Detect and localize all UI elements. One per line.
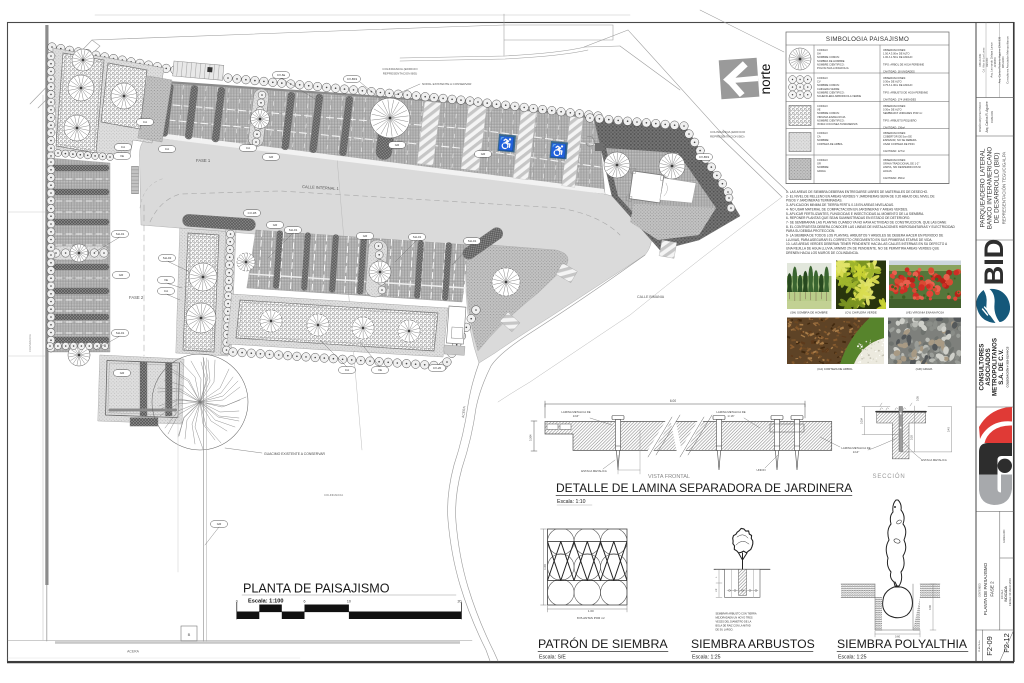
- svg-text:CALLE BIMANIA: CALLE BIMANIA: [637, 295, 665, 299]
- svg-text:CA: CA: [817, 135, 821, 139]
- svg-text:COLINDANCIA (EDIFICIO: COLINDANCIA (EDIFICIO: [382, 67, 418, 71]
- svg-text:BID: BID: [979, 239, 1009, 286]
- svg-text:norte: norte: [758, 64, 773, 95]
- svg-text:0.30: 0.30: [911, 435, 914, 440]
- svg-text:Arq. Carlos R. Aguirre: Arq. Carlos R. Aguirre: [985, 101, 989, 132]
- svg-text:GRAVA: GRAVA: [817, 169, 826, 173]
- svg-text:GUACIMO EXISTENTE A CONSERV: GUACIMO EXISTENTE A CONSERVAR: [264, 452, 325, 456]
- svg-text:0.254: 0.254: [861, 417, 864, 424]
- svg-text:UNION: UNION: [756, 468, 765, 472]
- svg-text:B: B: [188, 632, 191, 637]
- svg-text:CV-B19: CV-B19: [347, 77, 358, 81]
- svg-text:1/16": 1/16": [573, 414, 579, 418]
- svg-text:OBSERVACIONES:: OBSERVACIONES:: [883, 76, 906, 80]
- svg-text:GR: GR: [817, 162, 821, 166]
- svg-text:F2-09: F2-09: [985, 636, 994, 656]
- svg-text:1.50 A 3.00m DE ALTO: 1.50 A 3.00m DE ALTO: [883, 52, 910, 56]
- svg-text:SECCIÓN: SECCIÓN: [873, 473, 906, 480]
- svg-text:PLANTA DE PAISAJISMO: PLANTA DE PAISAJISMO: [983, 562, 988, 615]
- svg-text:Escala: 1:100: Escala: 1:100: [248, 599, 283, 605]
- svg-text:CORTEZA DE ARBOL: CORTEZA DE ARBOL: [817, 142, 843, 146]
- svg-text:DE SU LARGO.: DE SU LARGO.: [716, 629, 734, 632]
- svg-text:COLEGIACIÓN # 353-013-N-CS: COLEGIACIÓN # 353-013-N-CS: [1005, 346, 1010, 387]
- svg-text:CANTIDAD: 136m²: CANTIDAD: 136m²: [883, 126, 905, 130]
- svg-text:COBERTOR DE 5cm DE: COBERTOR DE 5cm DE: [883, 135, 912, 139]
- svg-text:6: 6: [304, 600, 306, 604]
- svg-text:CODIGO:: CODIGO:: [817, 131, 829, 135]
- svg-text:CODIGO:: CODIGO:: [817, 76, 829, 80]
- svg-text:PATRÓN DE SIEMBRA: PATRÓN DE SIEMBRA: [538, 636, 668, 651]
- svg-text:SCHEFFLERA ARBORICOLA VERDE: SCHEFFLERA ARBORICOLA VERDE: [817, 94, 861, 98]
- svg-text:LIMPIA, SIN DESPERDICIOS NI: LIMPIA, SIN DESPERDICIOS NI: [883, 165, 921, 169]
- svg-text:SH: SH: [817, 52, 821, 56]
- svg-text:GRAVA TRADICIONAL DE 1-2": GRAVA TRADICIONAL DE 1-2": [883, 162, 919, 166]
- svg-text:CANTIDAD: 127m²: CANTIDAD: 127m²: [883, 149, 905, 153]
- svg-text:CA: CA: [165, 147, 169, 151]
- svg-text:0.40: 0.40: [948, 427, 951, 432]
- svg-text:REPRESENTACIÓN TEGUCIGALPA: REPRESENTACIÓN TEGUCIGALPA: [1002, 152, 1007, 225]
- svg-text:DRENEN HACIA LOS MUROS DE COLI: DRENEN HACIA LOS MUROS DE COLINDANCIA.: [786, 251, 859, 255]
- svg-text:VECES DEL DIAMETRO DE LA: VECES DEL DIAMETRO DE LA: [716, 621, 752, 624]
- svg-text:REPRESENTACION BID): REPRESENTACION BID): [383, 72, 417, 76]
- svg-text:CODIGO:: CODIGO:: [817, 104, 829, 108]
- svg-text:CA: CA: [143, 120, 147, 124]
- svg-text:CODIGO:: CODIGO:: [817, 48, 829, 52]
- svg-text:0.30m DE ALTO: 0.30m DE ALTO: [883, 108, 902, 112]
- svg-text:SOMBRA DE HOMBRE: SOMBRA DE HOMBRE: [817, 59, 845, 63]
- svg-text:OBSERVACIONES:: OBSERVACIONES:: [883, 131, 906, 135]
- svg-text:IXORA COCCINEA TAIWANENSIS: IXORA COCCINEA TAIWANENSIS: [817, 122, 858, 126]
- svg-text:PARQUEADERO LATERAL: PARQUEADERO LATERAL: [980, 148, 987, 227]
- svg-text:OBSERVACIONES:: OBSERVACIONES:: [883, 48, 906, 52]
- svg-text:1/ 16": 1/ 16": [727, 414, 734, 418]
- svg-text:10: 10: [347, 600, 351, 604]
- svg-text:PLANTA No: PLANTA No: [978, 639, 981, 651]
- svg-text:COLINDANCIA (EDIFICIO: COLINDANCIA (EDIFICIO: [710, 130, 746, 134]
- svg-text:CV-8a: CV-8a: [277, 73, 286, 77]
- svg-text:0: 0: [236, 600, 238, 604]
- svg-text:CV-1B: CV-1B: [248, 211, 257, 215]
- svg-text:Escala: S/E: Escala: S/E: [539, 655, 566, 661]
- svg-text:SH-01: SH-01: [289, 228, 298, 232]
- svg-text:VISTA FRONTAL: VISTA FRONTAL: [648, 474, 690, 480]
- svg-text:NOMBRE CIENTIFICO:: NOMBRE CIENTIFICO:: [817, 118, 845, 122]
- svg-text:DISEÑO ARQUITECTONICO: DISEÑO ARQUITECTONICO: [979, 102, 982, 132]
- svg-text:USAR CORTEZA DE PINO.: USAR CORTEZA DE PINO.: [883, 142, 916, 146]
- svg-text:COLINDANCIA: COLINDANCIA: [28, 334, 32, 352]
- svg-text:SIEMBRA ARBUSTOS: SIEMBRA ARBUSTOS: [691, 637, 815, 651]
- svg-text:AGREGADO:: AGREGADO:: [1003, 529, 1006, 543]
- svg-text:NOMBRE:: NOMBRE:: [817, 138, 829, 142]
- svg-text:FECHA: 30 JULIO 2019: FECHA: 30 JULIO 2019: [1008, 578, 1012, 606]
- svg-text:CHIFLERA VERDE: CHIFLERA VERDE: [817, 87, 840, 91]
- svg-text:CV: CV: [817, 80, 821, 84]
- svg-text:MEJORADAEN UN HOYO TRES: MEJORADAEN UN HOYO TRES: [716, 617, 753, 620]
- svg-text:OBSERVACIONES:: OBSERVACIONES:: [883, 104, 906, 108]
- svg-text:CANTIDAD: 174 UNIDADES: CANTIDAD: 174 UNIDADES: [883, 98, 916, 102]
- svg-text:INDICADA: INDICADA: [1004, 585, 1008, 602]
- svg-text:DE DESARROLLO (BID): DE DESARROLLO (BID): [994, 152, 1001, 223]
- svg-text:F2-12: F2-12: [1002, 633, 1011, 653]
- svg-text:CV-B19: CV-B19: [699, 155, 710, 159]
- svg-text:SEMBRAR 8 UNIDADES POR m²: SEMBRAR 8 UNIDADES POR m²: [883, 111, 922, 115]
- svg-text:UBICACION:: UBICACION:: [979, 53, 982, 67]
- svg-text:CA: CA: [246, 146, 250, 150]
- svg-text:CODIGO:: CODIGO:: [817, 158, 829, 162]
- svg-text:SH-01: SH-01: [116, 331, 125, 335]
- svg-text:ESTACA METALICA: ESTACA METALICA: [921, 458, 947, 462]
- svg-text:NOMBRE:: NOMBRE:: [817, 165, 829, 169]
- svg-text:NOMBRE COMUN:: NOMBRE COMUN:: [817, 83, 840, 87]
- svg-text:Escala: 1:10: Escala: 1:10: [557, 499, 586, 505]
- svg-text:Consultores Asociados Metropol: Consultores Asociados Metropolitanos: [1006, 36, 1010, 84]
- svg-text:Escala: 1:25: Escala: 1:25: [692, 655, 721, 661]
- svg-text:CV-20: CV-20: [433, 366, 442, 370]
- svg-text:NOMBRE COMUN:: NOMBRE COMUN:: [817, 111, 840, 115]
- svg-text:Arq. Leonardo Zelaya Lance: Arq. Leonardo Zelaya Lance: [990, 42, 994, 78]
- svg-text:SIMBOLOGIA PAISAJISMO: SIMBOLOGIA PAISAJISMO: [826, 36, 909, 43]
- svg-text:CANTIDAD: 450m²: CANTIDAD: 450m²: [883, 176, 905, 180]
- svg-text:(CV) CHIFLERA VERDE: (CV) CHIFLERA VERDE: [845, 311, 877, 315]
- svg-text:Col. Altos de Las Lomas: Col. Altos de Las Lomas: [983, 47, 986, 73]
- svg-text:1.00: 1.00: [543, 564, 547, 570]
- svg-text:VE: VE: [164, 278, 168, 282]
- svg-text:0.90: 0.90: [928, 604, 932, 610]
- svg-text:NOPAL EXISTENTE A CONSERVAR: NOPAL EXISTENTE A CONSERVAR: [422, 82, 472, 86]
- svg-text:VE: VE: [817, 108, 821, 112]
- svg-text:1/14": 1/14": [853, 450, 859, 454]
- svg-text:BOLA DE RAIZ CON LA MITAD: BOLA DE RAIZ CON LA MITAD: [716, 625, 751, 628]
- svg-text:PLANTA DE PAISAJISMO: PLANTA DE PAISAJISMO: [243, 582, 390, 596]
- svg-text:SIEMBRA POLYALTHIA: SIEMBRA POLYALTHIA: [837, 637, 968, 651]
- svg-text:CA: CA: [121, 145, 125, 149]
- svg-text:CA: CA: [164, 289, 168, 293]
- svg-text:VE: VE: [378, 368, 382, 372]
- svg-text:HOJAS: HOJAS: [883, 169, 892, 173]
- svg-text:FASE 2: FASE 2: [990, 581, 995, 597]
- svg-text:SEMBRAR ARBUSTO CON TIERRA: SEMBRAR ARBUSTO CON TIERRA: [716, 613, 757, 616]
- svg-text:CA: CA: [345, 368, 349, 372]
- svg-text:VE: VE: [120, 154, 124, 158]
- svg-text:SH-01: SH-01: [468, 239, 477, 243]
- svg-text:0.05: 0.05: [917, 396, 920, 401]
- svg-text:1.00 A 1.50m DE ANCHO: 1.00 A 1.50m DE ANCHO: [883, 55, 912, 59]
- svg-text:CANTIDAD: 18 UNIDADES: CANTIDAD: 18 UNIDADES: [883, 70, 915, 74]
- svg-text:(CA) CORTEZA DE ARBOL: (CA) CORTEZA DE ARBOL: [817, 367, 853, 371]
- svg-text:ACERA: ACERA: [127, 650, 139, 654]
- svg-text:REPRESENTACION BID): REPRESENTACION BID): [710, 135, 744, 139]
- svg-text:(VE) VIRGINIA ENANA ROJA: (VE) VIRGINIA ENANA ROJA: [906, 311, 944, 315]
- svg-text:Escala: 1:25: Escala: 1:25: [838, 655, 867, 661]
- svg-text:3.264: 3.264: [529, 434, 533, 441]
- svg-text:DETALLE DE LAMINA SEPARADORA D: DETALLE DE LAMINA SEPARADORA DE JARDINER…: [556, 481, 852, 495]
- svg-text:VIRGINIA ENANA ROJA: VIRGINIA ENANA ROJA: [817, 115, 846, 119]
- svg-text:CONTENIDO:: CONTENIDO:: [980, 582, 982, 597]
- svg-text:SH-02: SH-02: [163, 256, 172, 260]
- svg-text:BANCO INTERAMERICANO: BANCO INTERAMERICANO: [987, 147, 994, 229]
- svg-text:ESPESOR, NO SE DEBERA: ESPESOR, NO SE DEBERA: [883, 138, 917, 142]
- svg-text:(SH) SOMBRA DE HOMBRE: (SH) SOMBRA DE HOMBRE: [790, 311, 827, 315]
- svg-text:(GR) GRAVA: (GR) GRAVA: [916, 367, 933, 371]
- svg-text:CAM-009: CAM-009: [990, 111, 994, 123]
- svg-text:NOMBRE CIENTIFICO:: NOMBRE CIENTIFICO:: [817, 62, 845, 66]
- svg-text:♿: ♿: [498, 136, 515, 152]
- svg-text:SH-01: SH-01: [116, 232, 125, 236]
- svg-text:FASE 1: FASE 1: [196, 158, 211, 163]
- svg-text:COLINDANCIA: COLINDANCIA: [324, 493, 343, 497]
- svg-text:TIPO: ARBOL DE HOJA PERENNE: TIPO: ARBOL DE HOJA PERENNE: [883, 62, 924, 66]
- svg-text:20: 20: [458, 600, 462, 604]
- svg-text:8 PLANTAS POR m²: 8 PLANTAS POR m²: [577, 616, 605, 620]
- svg-text:TIPO: ARBUSTO DE HOJA PERENNE: TIPO: ARBUSTO DE HOJA PERENNE: [883, 90, 928, 94]
- svg-text:1.00: 1.00: [588, 609, 594, 613]
- svg-text:0.75 A 1.00m DE ANCHO: 0.75 A 1.00m DE ANCHO: [883, 83, 912, 87]
- svg-text:6.00: 6.00: [670, 399, 676, 403]
- svg-text:NOMBRE CIENTIFICO:: NOMBRE CIENTIFICO:: [817, 90, 845, 94]
- svg-text:OBSERVACIONES:: OBSERVACIONES:: [883, 158, 906, 162]
- svg-text:Arq. Carlos Roberto Aguirre CA: Arq. Carlos Roberto Aguirre CAH 839: [998, 36, 1002, 83]
- svg-text:FASE 2: FASE 2: [129, 295, 144, 300]
- svg-text:S.A. DE C.V.: S.A. DE C.V.: [998, 349, 1005, 385]
- svg-text:0.30m DE ALTO: 0.30m DE ALTO: [883, 80, 902, 84]
- svg-text:♿: ♿: [550, 143, 567, 159]
- svg-text:POLYALTHIA LONGIFOLIA: POLYALTHIA LONGIFOLIA: [817, 66, 849, 70]
- svg-text:ESTACA METALICA: ESTACA METALICA: [581, 469, 607, 473]
- svg-text:SH-01: SH-01: [413, 235, 422, 239]
- svg-text:NOMBRE COMUN:: NOMBRE COMUN:: [817, 55, 840, 59]
